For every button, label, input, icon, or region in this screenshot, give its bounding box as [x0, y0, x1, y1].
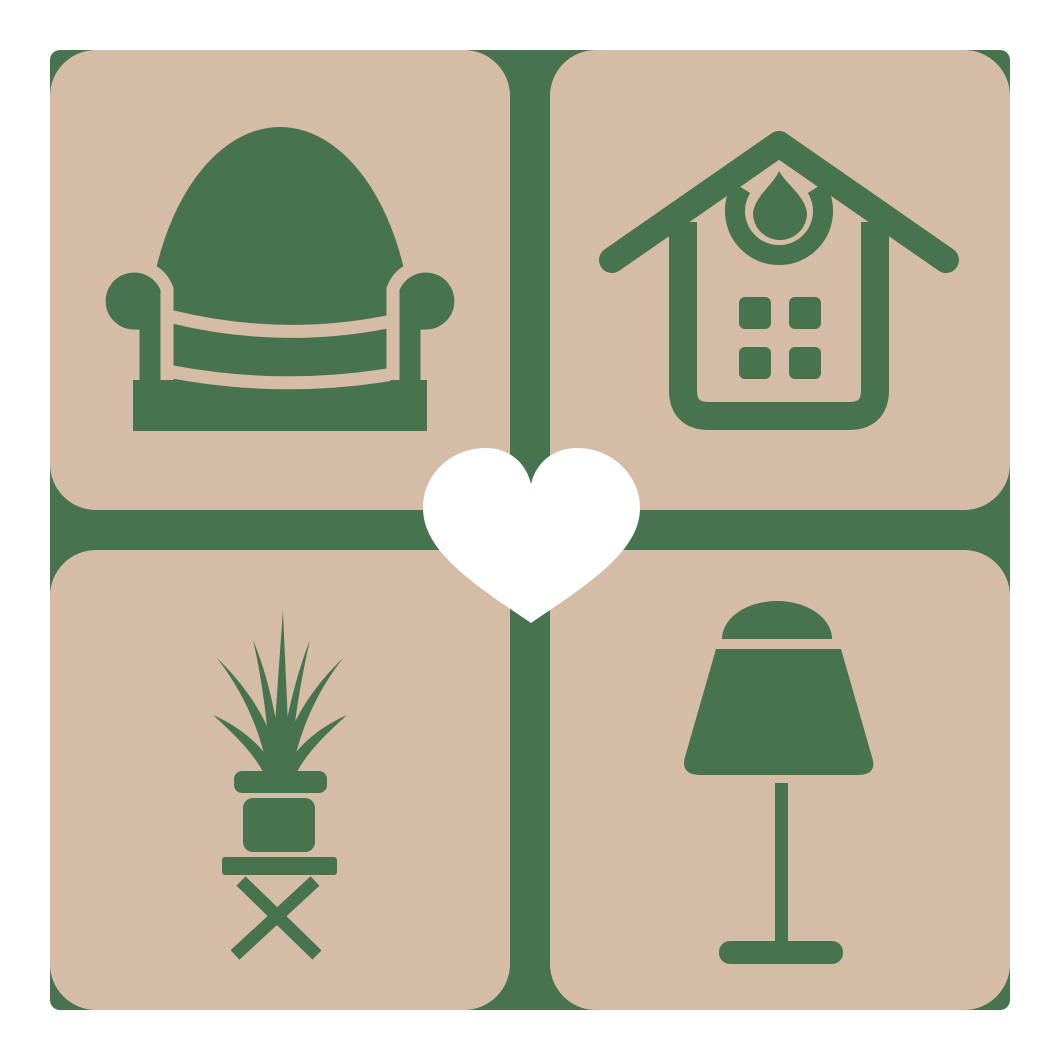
stool-seat	[222, 857, 337, 875]
lamp-stem	[775, 783, 788, 949]
plant-pot-body	[243, 798, 315, 852]
lamp-shade	[684, 649, 873, 775]
tile-top-right	[550, 50, 1010, 510]
house-window-top-right	[789, 297, 821, 329]
house-window-bottom-right	[789, 347, 821, 379]
logo-canvas	[0, 0, 1063, 1063]
lamp-base	[719, 941, 843, 964]
house-window-bottom-left	[739, 347, 771, 379]
house-window-top-left	[739, 297, 771, 329]
logo-graphic	[0, 0, 1063, 1063]
plant-pot-rim	[234, 771, 327, 793]
